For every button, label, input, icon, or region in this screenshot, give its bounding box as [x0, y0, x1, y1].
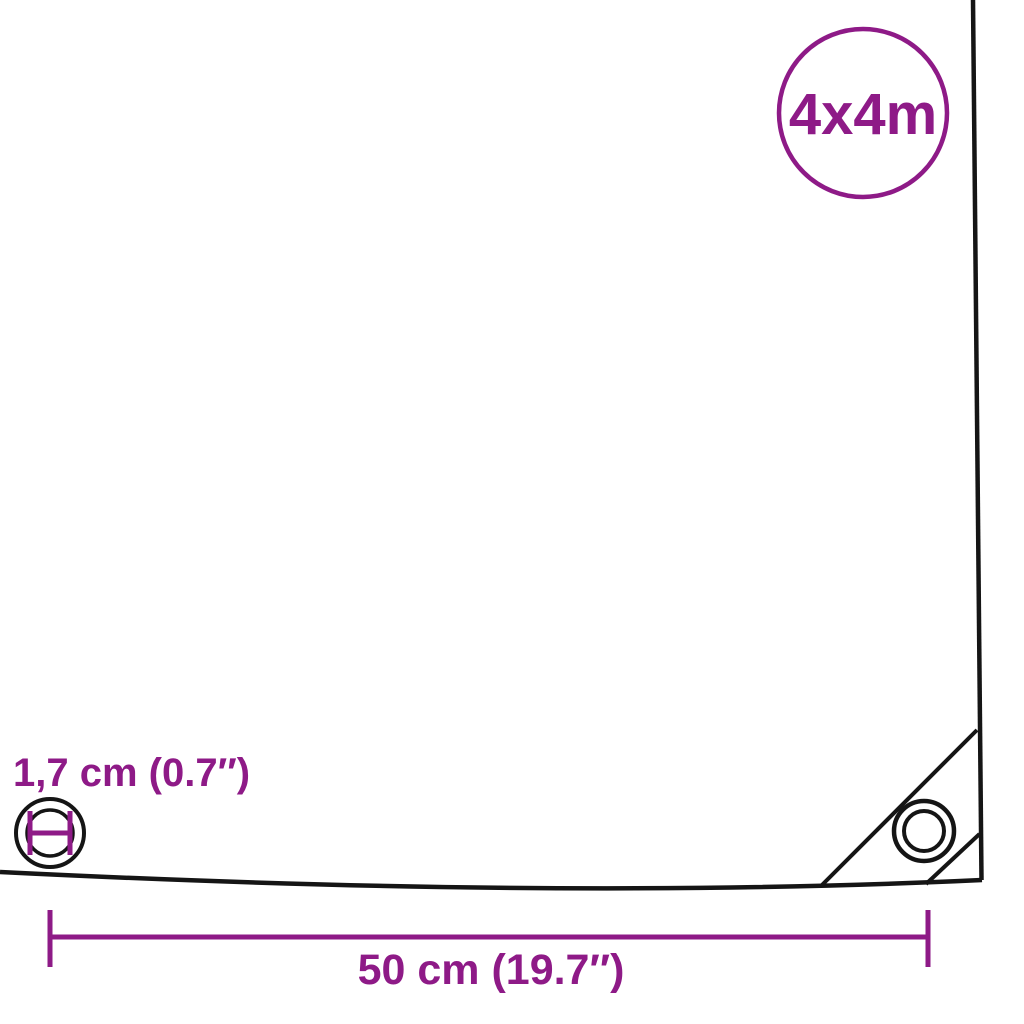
eyelet-detail [16, 799, 84, 867]
size-badge: 4x4m [779, 29, 947, 197]
corner-grommet [894, 801, 954, 861]
tarp-dimension-diagram: 4x4m 1,7 cm (0.7″) 50 cm (19.7″) [0, 0, 1024, 1024]
corner-patch-seam [821, 730, 977, 886]
tarp-right-edge [973, 0, 982, 880]
corner-grommet-inner-ring-icon [904, 811, 944, 851]
diagram-canvas: 4x4m 1,7 cm (0.7″) 50 cm (19.7″) [0, 0, 1024, 1024]
eyelet-diameter-label: 1,7 cm (0.7″) [13, 751, 250, 795]
size-badge-label: 4x4m [789, 82, 937, 147]
eyelet-spacing-label: 50 cm (19.7″) [358, 946, 625, 994]
